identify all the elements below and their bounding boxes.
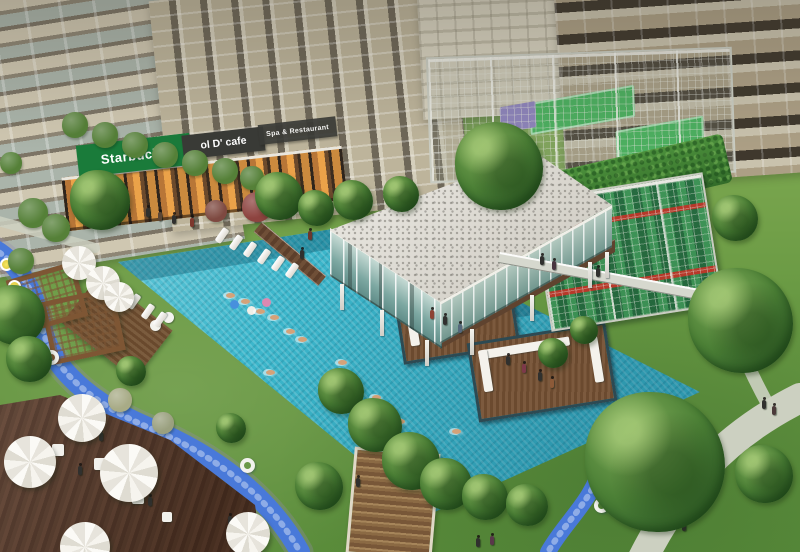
clubhouse-column bbox=[340, 284, 344, 310]
swimmer bbox=[266, 370, 275, 375]
tree bbox=[538, 338, 568, 368]
person-figure bbox=[308, 231, 312, 240]
tree bbox=[712, 195, 758, 241]
tree bbox=[295, 462, 343, 510]
tree bbox=[298, 190, 334, 226]
bush bbox=[62, 112, 88, 138]
bush bbox=[122, 132, 148, 158]
person-figure bbox=[490, 536, 494, 545]
tree bbox=[255, 172, 303, 220]
bush bbox=[0, 152, 22, 174]
pool-float bbox=[262, 298, 271, 307]
person-figure bbox=[772, 406, 776, 415]
person-figure bbox=[538, 372, 542, 381]
umbrella bbox=[58, 394, 106, 442]
person-figure bbox=[550, 379, 554, 388]
swimmer bbox=[270, 315, 279, 320]
tree bbox=[333, 180, 373, 220]
umbrella bbox=[60, 522, 110, 552]
sun-lounger bbox=[229, 234, 244, 251]
person-figure bbox=[158, 212, 162, 221]
clubhouse-column bbox=[470, 329, 474, 355]
clubhouse-column bbox=[605, 252, 609, 278]
tree bbox=[70, 170, 130, 230]
pool-float bbox=[247, 306, 256, 315]
tree bbox=[216, 413, 246, 443]
clubhouse-column bbox=[425, 340, 429, 366]
tree bbox=[585, 392, 725, 532]
tree bbox=[688, 268, 793, 373]
tree bbox=[570, 316, 598, 344]
swimmer bbox=[338, 360, 347, 365]
umbrella bbox=[226, 512, 270, 552]
tree bbox=[735, 445, 793, 503]
umbrella bbox=[4, 436, 56, 488]
bush bbox=[182, 150, 208, 176]
clubhouse-column bbox=[588, 262, 592, 288]
bush bbox=[152, 142, 178, 168]
tree bbox=[116, 356, 146, 386]
swimmer bbox=[452, 429, 461, 434]
pool-float bbox=[230, 300, 239, 309]
person-figure bbox=[552, 261, 556, 270]
swimmer bbox=[298, 337, 307, 342]
person-figure bbox=[300, 250, 304, 259]
person-figure bbox=[476, 538, 480, 547]
bush bbox=[152, 412, 174, 434]
person-figure bbox=[190, 218, 194, 227]
person-figure bbox=[522, 364, 526, 373]
umbrella bbox=[104, 282, 134, 312]
sun-lounger bbox=[141, 303, 156, 320]
person-figure bbox=[596, 268, 600, 277]
bush bbox=[212, 158, 238, 184]
bush bbox=[205, 200, 227, 222]
deck-table bbox=[162, 512, 172, 522]
sun-lounger bbox=[257, 248, 272, 265]
bush bbox=[92, 122, 118, 148]
person-figure bbox=[458, 324, 462, 333]
tree bbox=[383, 176, 419, 212]
tree bbox=[455, 122, 543, 210]
person-figure bbox=[172, 215, 176, 224]
person-figure bbox=[430, 310, 434, 319]
tree bbox=[6, 336, 52, 382]
clubhouse-column bbox=[380, 310, 384, 336]
clubhouse-column bbox=[530, 295, 534, 321]
swimmer bbox=[226, 293, 235, 298]
umbrella bbox=[100, 444, 158, 502]
person-figure bbox=[762, 400, 766, 409]
person-figure bbox=[506, 356, 510, 365]
sun-lounger bbox=[285, 262, 300, 279]
person-figure bbox=[443, 316, 447, 325]
ring-float bbox=[240, 458, 255, 473]
tree bbox=[462, 474, 508, 520]
bush bbox=[8, 248, 34, 274]
sun-lounger bbox=[271, 255, 286, 272]
tree bbox=[506, 484, 548, 526]
person-figure bbox=[78, 466, 82, 475]
sun-lounger bbox=[215, 227, 230, 244]
swimmer bbox=[256, 309, 265, 314]
swimmer bbox=[241, 299, 250, 304]
person-figure bbox=[146, 208, 150, 217]
bush bbox=[42, 214, 70, 242]
person-figure bbox=[148, 497, 152, 506]
bush bbox=[108, 388, 132, 412]
swimmer bbox=[286, 329, 295, 334]
person-figure bbox=[356, 478, 360, 487]
sprite-layer bbox=[0, 0, 800, 552]
person-figure bbox=[540, 256, 544, 265]
sun-lounger bbox=[243, 241, 258, 258]
aerial-rendering-scene: Starbucks ol D' cafe Spa & Restaurant bbox=[0, 0, 800, 552]
